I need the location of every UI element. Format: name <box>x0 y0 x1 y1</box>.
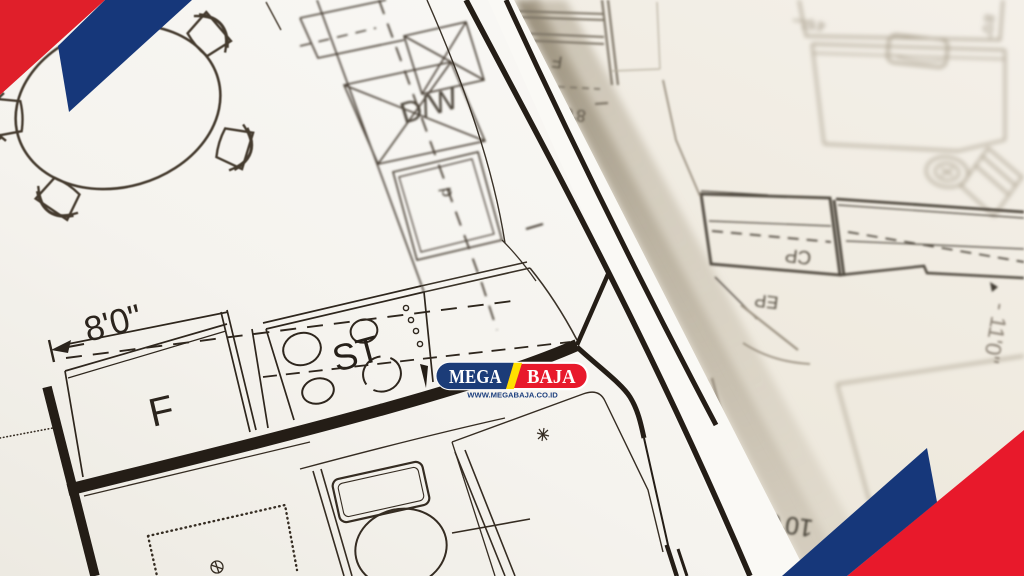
svg-text:8'0": 8'0" <box>979 14 998 39</box>
svg-text:EP: EP <box>753 290 779 313</box>
svg-text:4'6": 4'6" <box>801 16 826 35</box>
svg-text:BAJA: BAJA <box>527 366 576 388</box>
svg-text:MEGA: MEGA <box>449 366 502 388</box>
svg-text:WWW.MEGABAJA.CO.ID: WWW.MEGABAJA.CO.ID <box>467 392 558 399</box>
svg-text:CP: CP <box>784 244 813 268</box>
